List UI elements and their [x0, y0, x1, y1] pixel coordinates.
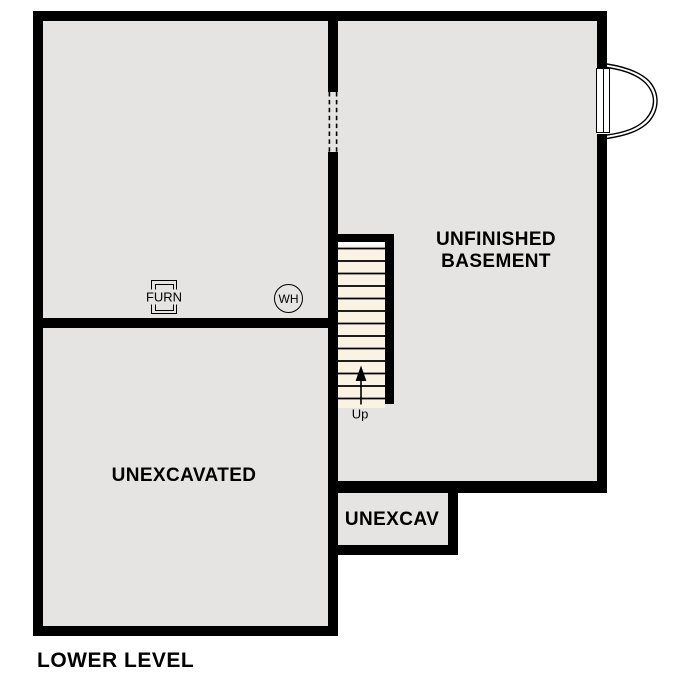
- stairs-up-label: Up: [352, 407, 369, 422]
- room-label-basement-line1: UNFINISHED: [436, 229, 556, 251]
- plan-linework: [0, 0, 687, 687]
- water-heater-icon: WH: [274, 284, 303, 313]
- plan-title: LOWER LEVEL: [37, 649, 194, 673]
- dashed-opening-icon: [329, 92, 336, 152]
- furnace-label: FURN: [145, 290, 183, 305]
- room-label-basement: UNFINISHED BASEMENT: [436, 229, 556, 273]
- furnace-icon: FURN: [151, 280, 177, 314]
- floor-plan: FURN WH UNFINISHED BASEMENT UNEXCAVATED …: [0, 0, 687, 687]
- room-label-unexcav: UNEXCAV: [345, 509, 439, 531]
- room-label-unexcavated: UNEXCAVATED: [112, 465, 257, 487]
- room-label-basement-line2: BASEMENT: [436, 251, 556, 273]
- water-heater-label: WH: [279, 292, 299, 306]
- window-well-icon: [607, 64, 657, 139]
